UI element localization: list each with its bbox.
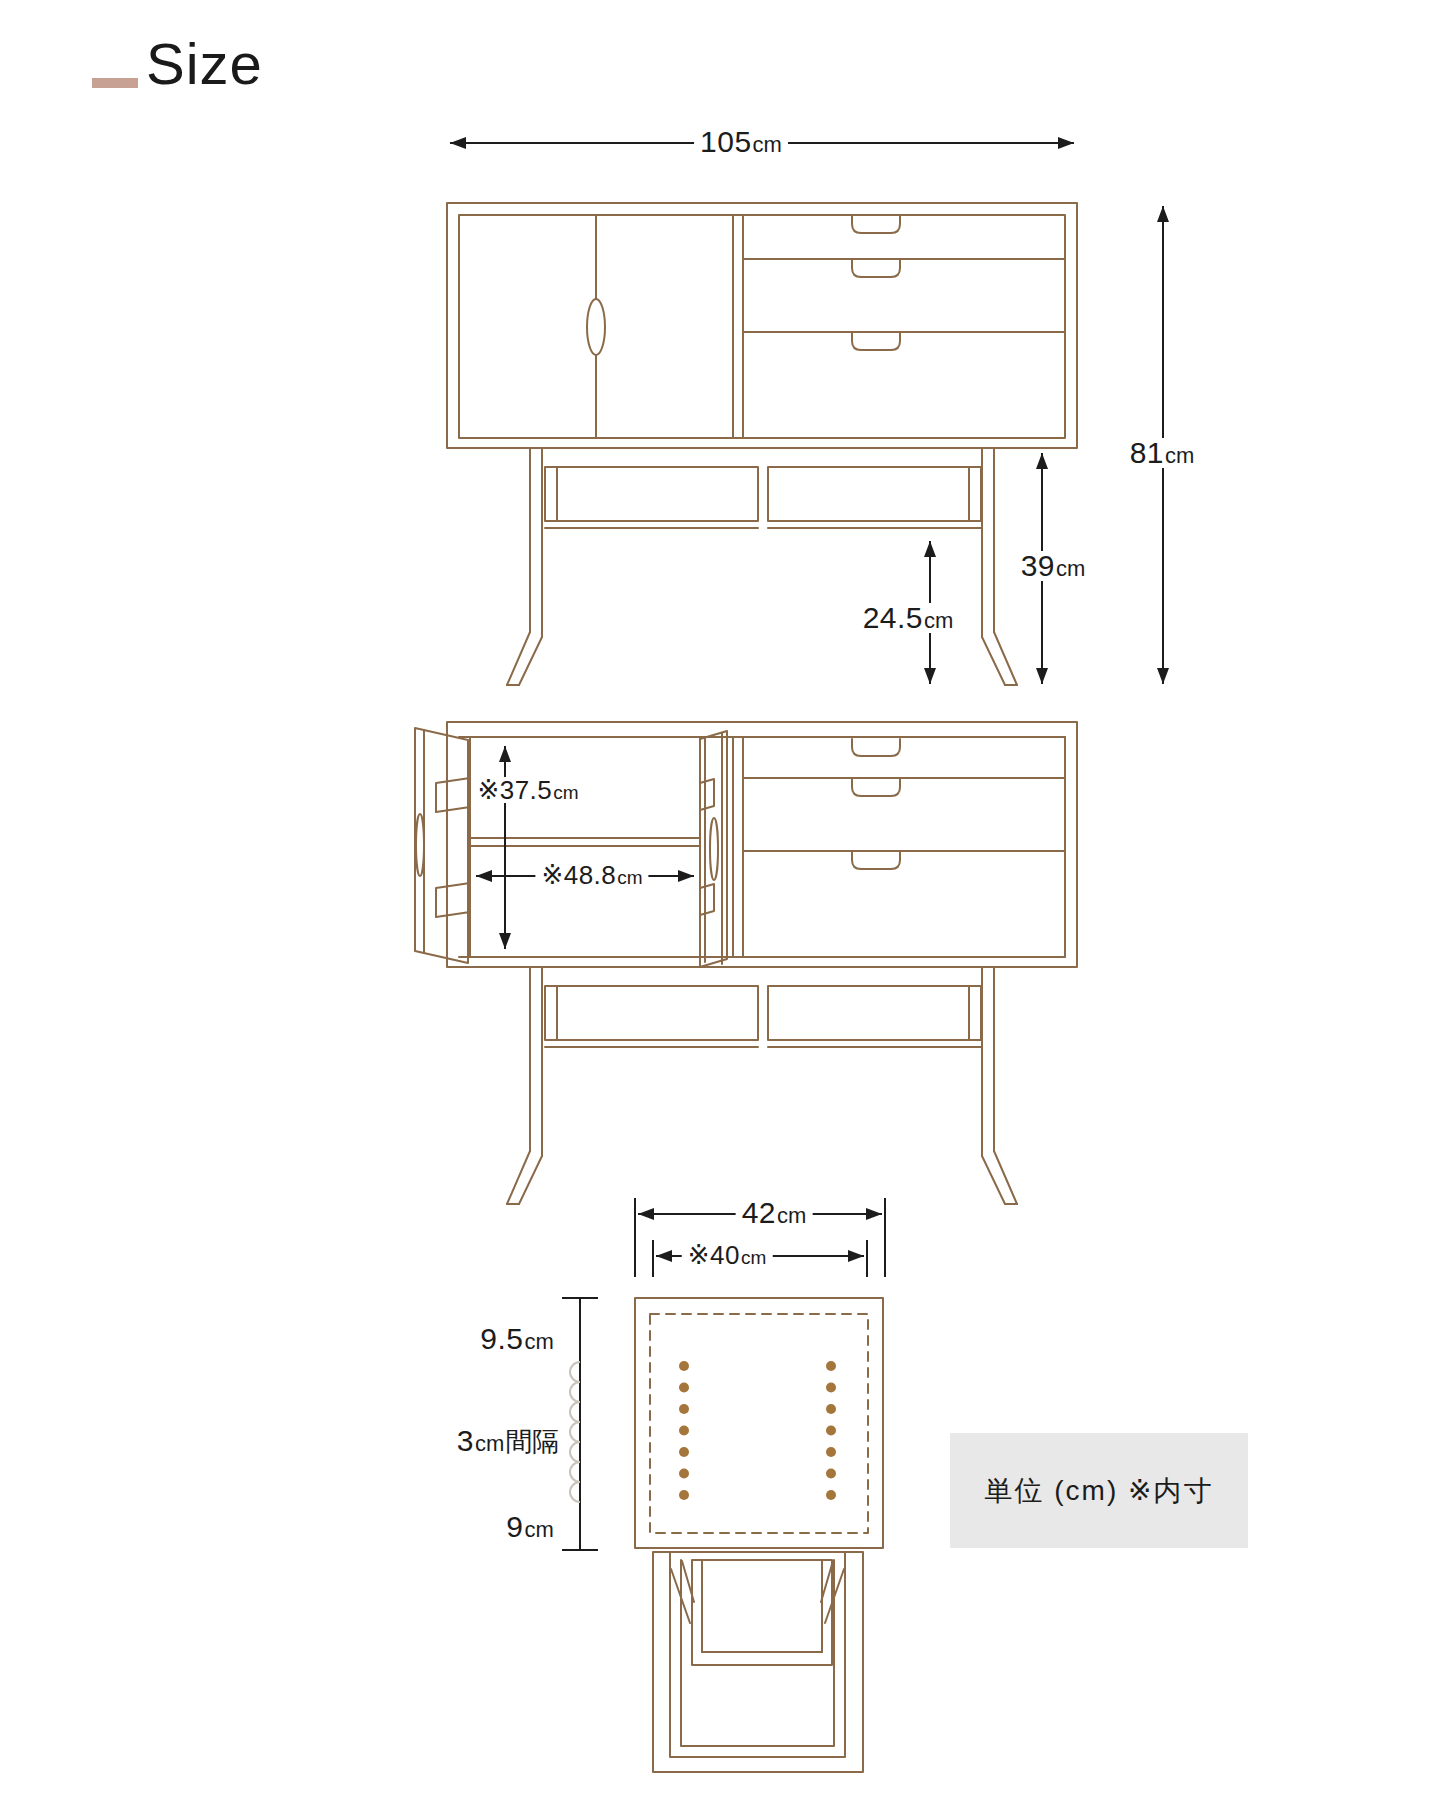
door-handle-oval xyxy=(416,814,424,876)
dim-hole-offset-bottom-label: 9cm xyxy=(500,1512,560,1542)
door-handle-oval xyxy=(710,818,718,880)
unit-note-box: 単位 (cm) ※内寸 xyxy=(950,1433,1248,1548)
hinge xyxy=(700,884,714,915)
size-diagram-page: Size xyxy=(0,0,1445,1806)
top-view-drawing xyxy=(635,1298,883,1548)
dim-stand-height-label: 39cm xyxy=(1015,551,1092,581)
dim-depth-label: 42cm xyxy=(736,1198,813,1228)
dim-inner-width-label: ※48.8cm xyxy=(535,862,648,888)
drawer-pull xyxy=(852,779,900,796)
open-shelf xyxy=(545,467,981,528)
hinge xyxy=(436,883,470,917)
stand-side-view-drawing xyxy=(653,1552,863,1772)
dim-hole-interval-label: 3cm間隔 xyxy=(451,1426,566,1456)
stand-legs xyxy=(507,448,1017,685)
hinge xyxy=(436,778,470,812)
drawer-pull xyxy=(852,216,900,233)
front-view-closed-drawing xyxy=(447,203,1077,685)
shelf-pin-holes xyxy=(679,1361,836,1500)
unit-note-text: 単位 (cm) ※内寸 xyxy=(985,1472,1214,1510)
dim-total-height-label: 81cm xyxy=(1124,438,1201,468)
hinge xyxy=(700,779,714,810)
dim-hole-offset-top-label: 9.5cm xyxy=(474,1324,560,1354)
stand-legs xyxy=(507,967,1017,1204)
drawer-pull xyxy=(852,739,900,756)
hole-pitch-scale xyxy=(562,1298,598,1550)
drawer-pull xyxy=(852,260,900,277)
drawer-pull xyxy=(852,852,900,869)
dim-shelf-clearance-label: 24.5cm xyxy=(857,603,960,633)
dim-inner-depth-label: ※40cm xyxy=(682,1242,773,1268)
open-door-left xyxy=(415,728,470,963)
dim-width-label: 105cm xyxy=(694,127,788,157)
open-shelf xyxy=(545,986,981,1047)
door-handle-oval xyxy=(587,299,605,355)
drawer-pull xyxy=(852,333,900,350)
pitch-scallops xyxy=(570,1362,580,1502)
open-door-right xyxy=(700,731,727,967)
dim-inner-height-label: ※37.5cm xyxy=(471,777,584,803)
